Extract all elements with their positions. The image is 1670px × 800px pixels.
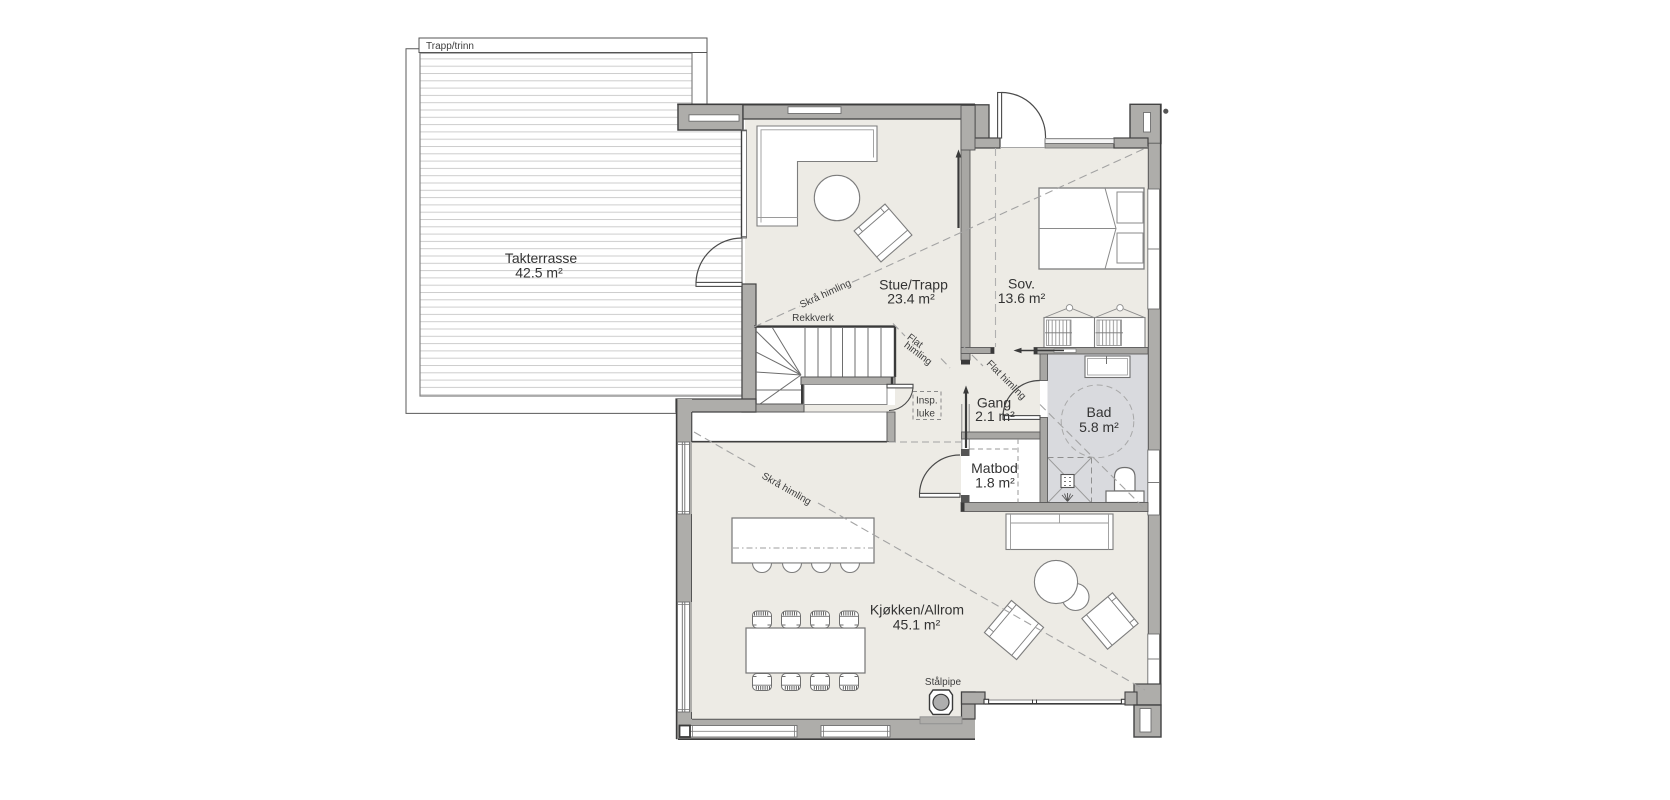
svg-text:5.8 m²: 5.8 m² [1079,419,1119,435]
svg-text:42.5 m²: 42.5 m² [515,265,563,281]
svg-text:1.8 m²: 1.8 m² [975,475,1015,491]
svg-text:Kjøkken/Allrom: Kjøkken/Allrom [870,602,964,618]
svg-text:13.6 m²: 13.6 m² [998,290,1046,306]
svg-text:Stålpipe: Stålpipe [925,676,962,688]
svg-text:45.1 m²: 45.1 m² [893,617,941,633]
svg-text:Trapp/trinn: Trapp/trinn [426,41,474,52]
svg-text:luke: luke [917,409,936,420]
svg-text:23.4 m²: 23.4 m² [887,291,935,307]
svg-text:Rekkverk: Rekkverk [792,313,835,324]
svg-text:Insp.: Insp. [916,396,938,407]
svg-text:2.1 m²: 2.1 m² [975,408,1015,424]
svg-text:Bad: Bad [1087,404,1112,420]
